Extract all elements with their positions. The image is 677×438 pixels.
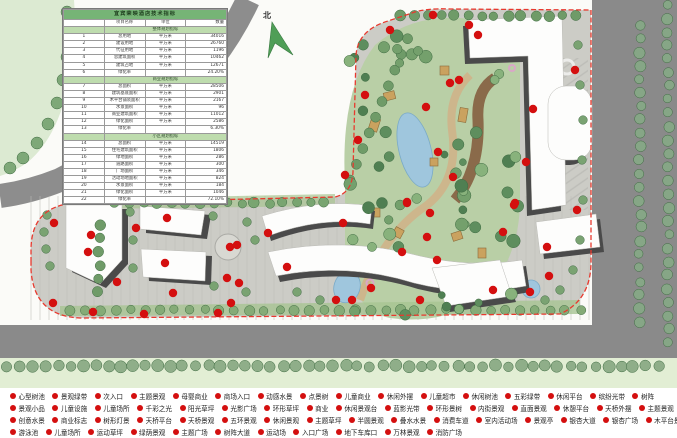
legend-dot-icon xyxy=(95,393,101,399)
legend-dot-icon xyxy=(307,417,313,423)
north-label: 北 xyxy=(263,10,271,21)
legend-label: 天桥景观 xyxy=(188,415,214,425)
legend-item: 商业标志 xyxy=(52,415,87,425)
legend-item: 树形灯景 xyxy=(95,415,130,425)
legend-label: 儿童设施 xyxy=(61,403,87,413)
table-row: 20水景面积平方米184 xyxy=(64,183,227,190)
table-row: 21绿化面积平方米1046 xyxy=(64,190,227,197)
legend-item: 主题景观 xyxy=(131,391,166,401)
legend-item: 儿童设施 xyxy=(52,403,87,413)
legend-item: 母婴商业 xyxy=(173,391,208,401)
legend-label: 光影广场 xyxy=(230,403,256,413)
legend-dot-icon xyxy=(597,405,603,411)
table-row: 13绿化率6.30% xyxy=(64,126,227,133)
plan-marker-dot xyxy=(264,229,272,237)
plan-marker-dot xyxy=(227,299,235,307)
legend-label: 商业 xyxy=(315,403,328,413)
legend-label: 主题景观 xyxy=(139,391,165,401)
legend-dot-icon xyxy=(505,393,511,399)
site-plan-canvas: 北 宜宾荣映酒店技术指标项目名称单位数量整体规划指标1总用地平方米340162建… xyxy=(0,0,677,438)
plan-marker-dot xyxy=(132,224,140,232)
legend-label: 休闲树池 xyxy=(471,391,497,401)
legend-label: 运动场 xyxy=(266,427,286,437)
legend-dot-icon xyxy=(336,429,342,435)
plan-marker-dot xyxy=(332,296,340,304)
legend-label: 万林景观 xyxy=(393,427,419,437)
legend-item: 景观亭 xyxy=(525,415,553,425)
plan-marker-dot xyxy=(367,284,375,292)
table-row: 18广场面积平方米346 xyxy=(64,168,227,175)
plan-marker-dot xyxy=(354,136,362,144)
legend-dot-icon xyxy=(10,417,16,423)
table-title: 宜宾荣映酒店技术指标 xyxy=(64,10,227,20)
table-row: 19活动场地面积平方米824 xyxy=(64,176,227,183)
legend-dot-icon xyxy=(385,405,391,411)
legend-item: 休闲平台 xyxy=(548,391,583,401)
legend-label: 树形灯景 xyxy=(103,415,129,425)
legend-item: 运动场 xyxy=(258,427,286,437)
legend-label: 阳光草坪 xyxy=(188,403,214,413)
legend-item: 半圆景观 xyxy=(349,415,384,425)
legend-item: 点景树 xyxy=(300,391,328,401)
table-row: 2建设用地平方米26760 xyxy=(64,41,227,48)
legend-label: 直面景观 xyxy=(520,403,546,413)
legend-dot-icon xyxy=(385,429,391,435)
legend-dot-icon xyxy=(427,405,433,411)
plan-marker-dot xyxy=(49,299,57,307)
legend-item: 心型树池 xyxy=(10,391,45,401)
legend-label: 树阵 xyxy=(641,391,654,401)
table-section-row: 整体规划指标 xyxy=(64,27,227,34)
legend-dot-icon xyxy=(95,405,101,411)
legend-item: 游泳池 xyxy=(10,427,38,437)
legend-label: 休闲平台 xyxy=(556,391,582,401)
legend-item: 光影广场 xyxy=(222,403,257,413)
legend-label: 树阵大道 xyxy=(224,427,250,437)
legend-dot-icon xyxy=(590,393,596,399)
legend-item: 休闲景观台 xyxy=(336,403,377,413)
legend-row: 游泳池儿童场所运动草坪绿荫景观主题广场树阵大道运动场入口广场地下车库口万林景观消… xyxy=(0,427,677,437)
legend-label: 五环景观 xyxy=(230,415,256,425)
plan-marker-dot xyxy=(140,310,148,318)
legend-item: 动感水景 xyxy=(258,391,293,401)
legend-dot-icon xyxy=(427,429,433,435)
legend-dot-icon xyxy=(336,393,342,399)
legend-label: 母婴商业 xyxy=(181,391,207,401)
legend-dot-icon xyxy=(52,405,58,411)
table-row: 22绿化率72.10% xyxy=(64,197,227,204)
legend-item: 木平台景观 xyxy=(646,415,677,425)
plan-marker-dot xyxy=(283,263,291,271)
legend-label: 景观绿带 xyxy=(61,391,87,401)
plan-marker-dot xyxy=(398,248,406,256)
legend-item: 儿童商业 xyxy=(336,391,371,401)
legend-dot-icon xyxy=(258,393,264,399)
plan-marker-dot xyxy=(474,31,482,39)
legend-item: 绿荫景观 xyxy=(131,427,166,437)
plan-marker-dot xyxy=(529,105,537,113)
legend-label: 木平台景观 xyxy=(654,415,677,425)
legend-item: 休闲景观 xyxy=(264,415,299,425)
legend-item: 直面景观 xyxy=(512,403,547,413)
legend-dot-icon xyxy=(131,429,137,435)
legend-item: 树阵 xyxy=(632,391,654,401)
legend-item: 休憩平台 xyxy=(554,403,589,413)
plan-marker-dot xyxy=(233,241,241,249)
plan-marker-dot xyxy=(361,91,369,99)
legend-dot-icon xyxy=(300,393,306,399)
table-row: 6绿化率24.20% xyxy=(64,69,227,76)
legend-item: 休闲树池 xyxy=(463,391,498,401)
legend-dot-icon xyxy=(10,429,16,435)
plan-marker-dot xyxy=(339,219,347,227)
legend-dot-icon xyxy=(88,429,94,435)
legend-label: 儿童场所 xyxy=(54,427,80,437)
plan-marker-dot xyxy=(422,103,430,111)
legend-label: 休闲外摆 xyxy=(387,391,413,401)
legend-item: 室内活动场 xyxy=(476,415,517,425)
legend-item: 阳光草坪 xyxy=(180,403,215,413)
legend-label: 景观小品 xyxy=(19,403,45,413)
legend-label: 次入口 xyxy=(103,391,123,401)
table-row: 7总面积平方米28506 xyxy=(64,83,227,90)
legend-dot-icon xyxy=(10,393,16,399)
table-section-row: 小区规划指标 xyxy=(64,133,227,140)
legend-dot-icon xyxy=(293,429,299,435)
legend-dot-icon xyxy=(603,417,609,423)
legend-dot-icon xyxy=(463,393,469,399)
legend-label: 叠水水景 xyxy=(400,415,426,425)
legend-dot-icon xyxy=(264,417,270,423)
legend-item: 缤纷光带 xyxy=(590,391,625,401)
plan-marker-dot xyxy=(522,158,530,166)
legend-item: 休闲外摆 xyxy=(378,391,413,401)
legend-dot-icon xyxy=(52,393,58,399)
legend-label: 半圆景观 xyxy=(358,415,384,425)
legend-dot-icon xyxy=(222,405,228,411)
table-section-row: 商业规划指标 xyxy=(64,76,227,83)
legend-dot-icon xyxy=(222,417,228,423)
plan-marker-dot xyxy=(341,171,349,179)
legend-label: 商业标志 xyxy=(61,415,87,425)
legend-label: 入口广场 xyxy=(302,427,328,437)
plan-marker-dot xyxy=(511,199,519,207)
plan-marker-dot xyxy=(163,214,171,222)
legend-label: 天桥外摆 xyxy=(605,403,631,413)
table-row: 15住宅建筑面积平方米1806 xyxy=(64,147,227,154)
legend-item: 景观小品 xyxy=(10,403,45,413)
legend-item: 儿童超市 xyxy=(421,391,456,401)
plan-marker-dot xyxy=(89,308,97,316)
table-row: 11商业建筑面积平方米11012 xyxy=(64,112,227,119)
plan-marker-dot xyxy=(526,288,534,296)
plan-marker-dot xyxy=(169,289,177,297)
technical-indicators-table: 宜宾荣映酒店技术指标项目名称单位数量整体规划指标1总用地平方米340162建设用… xyxy=(62,8,228,205)
legend-item: 主题广场 xyxy=(173,427,208,437)
legend-dot-icon xyxy=(307,405,313,411)
plan-marker-dot xyxy=(545,272,553,280)
legend-label: 消费车道 xyxy=(442,415,468,425)
legend-label: 儿童场所 xyxy=(103,403,129,413)
legend-item: 天桥平台 xyxy=(137,415,172,425)
plan-marker-dot xyxy=(161,259,169,267)
legend-item: 万林景观 xyxy=(385,427,420,437)
legend-label: 环形草坪 xyxy=(273,403,299,413)
legend-item: 蓝影光带 xyxy=(385,403,420,413)
legend-dot-icon xyxy=(391,417,397,423)
legend-dot-icon xyxy=(554,405,560,411)
legend-dot-icon xyxy=(646,417,652,423)
legend-dot-icon xyxy=(336,405,342,411)
table-row: 10水景面积平方米96 xyxy=(64,105,227,112)
legend-dot-icon xyxy=(46,429,52,435)
plan-marker-dot xyxy=(416,296,424,304)
legend-label: 儿童超市 xyxy=(429,391,455,401)
legend-label: 休闲景观台 xyxy=(344,403,377,413)
legend-item: 叠水水景 xyxy=(391,415,426,425)
legend-item: 银杏大道 xyxy=(561,415,596,425)
table-row: 16绿地面积平方米286 xyxy=(64,154,227,161)
plan-marker-dot xyxy=(429,11,437,19)
legend-item: 消防广场 xyxy=(427,427,462,437)
legend-label: 商场入口 xyxy=(224,391,250,401)
legend-dot-icon xyxy=(512,405,518,411)
plan-marker-dot xyxy=(403,198,411,206)
legend-item: 商场入口 xyxy=(215,391,250,401)
table-row: 3代征用地平方米1196 xyxy=(64,48,227,55)
legend-item: 商业 xyxy=(307,403,329,413)
legend-dot-icon xyxy=(215,393,221,399)
plan-marker-dot xyxy=(348,296,356,304)
legend-label: 室内活动场 xyxy=(485,415,518,425)
plan-marker-dot xyxy=(50,219,58,227)
legend-label: 点景树 xyxy=(309,391,329,401)
legend-item: 环形景树 xyxy=(427,403,462,413)
table-row: 12绿化面积平方米2586 xyxy=(64,119,227,126)
legend-item: 环形草坪 xyxy=(264,403,299,413)
legend-label: 主题景观 xyxy=(648,403,674,413)
legend-label: 环形景树 xyxy=(436,403,462,413)
legend-label: 儿童商业 xyxy=(344,391,370,401)
plan-marker-dot xyxy=(489,286,497,294)
plan-marker-dot xyxy=(499,228,507,236)
legend-label: 天桥平台 xyxy=(146,415,172,425)
plan-marker-dot xyxy=(573,206,581,214)
plan-marker-dot xyxy=(455,76,463,84)
legend-label: 景观亭 xyxy=(534,415,554,425)
legend-row: 心型树池景观绿带次入口主题景观母婴商业商场入口动感水景点景树儿童商业休闲外摆儿童… xyxy=(0,391,677,401)
legend-label: 心型树池 xyxy=(19,391,45,401)
plan-marker-dot xyxy=(571,66,579,74)
legend-item: 五彩绿带 xyxy=(505,391,540,401)
legend-item: 树阵大道 xyxy=(215,427,250,437)
legend-dot-icon xyxy=(10,405,16,411)
table-header-row: 项目名称单位数量 xyxy=(64,20,227,27)
legend-dot-icon xyxy=(525,417,531,423)
plan-marker-dot xyxy=(446,79,454,87)
legend-label: 五彩绿带 xyxy=(514,391,540,401)
legend-item: 运动草坪 xyxy=(88,427,123,437)
plan-marker-dot xyxy=(434,148,442,156)
legend-label: 地下车库口 xyxy=(344,427,377,437)
legend-row: 景观小品儿童设施儿童场所千彩之光阳光草坪光影广场环形草坪商业休闲景观台蓝影光带环… xyxy=(0,403,677,413)
legend-label: 内街景观 xyxy=(478,403,504,413)
plan-marker-dot xyxy=(113,278,121,286)
legend-dot-icon xyxy=(632,393,638,399)
legend-row: 创意水景商业标志树形灯景天桥平台天桥景观五环景观休闲景观主题草坪半圆景观叠水水景… xyxy=(0,415,677,425)
legend-label: 休憩平台 xyxy=(563,403,589,413)
table-row: 5建筑占地平方米12671 xyxy=(64,62,227,69)
legend-label: 银杏大道 xyxy=(569,415,595,425)
legend-dot-icon xyxy=(470,405,476,411)
table-row: 8建筑基底面积平方米2901 xyxy=(64,90,227,97)
legend-dot-icon xyxy=(180,405,186,411)
legend-dot-icon xyxy=(95,417,101,423)
legend-item: 五环景观 xyxy=(222,415,257,425)
legend-dot-icon xyxy=(639,405,645,411)
legend-item: 千彩之光 xyxy=(137,403,172,413)
legend-dot-icon xyxy=(131,393,137,399)
legend-dot-icon xyxy=(548,393,554,399)
legend-dot-icon xyxy=(561,417,567,423)
legend-item: 入口广场 xyxy=(293,427,328,437)
legend-dot-icon xyxy=(421,393,427,399)
legend-item: 创意水景 xyxy=(10,415,45,425)
plan-marker-dot xyxy=(423,233,431,241)
legend-item: 天桥景观 xyxy=(180,415,215,425)
legend-label: 银杏广场 xyxy=(612,415,638,425)
legend-item: 次入口 xyxy=(95,391,123,401)
legend-label: 绿荫景观 xyxy=(139,427,165,437)
legend-dot-icon xyxy=(180,417,186,423)
table-row: 9木平台铺装面积平方米2167 xyxy=(64,98,227,105)
legend-item: 内街景观 xyxy=(470,403,505,413)
plan-marker-dot xyxy=(433,256,441,264)
legend-dot-icon xyxy=(215,429,221,435)
legend-item: 消费车道 xyxy=(434,415,469,425)
legend-dot-icon xyxy=(173,393,179,399)
legend-dot-icon xyxy=(173,429,179,435)
legend-dot-icon xyxy=(264,405,270,411)
legend-dot-icon xyxy=(258,429,264,435)
table-row: 14总面积平方米14519 xyxy=(64,140,227,147)
plan-marker-dot xyxy=(223,274,231,282)
legend-item: 地下车库口 xyxy=(336,427,377,437)
plan-marker-dot xyxy=(449,173,457,181)
legend-label: 主题广场 xyxy=(181,427,207,437)
plan-marker-dot xyxy=(543,243,551,251)
legend-item: 主题草坪 xyxy=(307,415,342,425)
legend-item: 景观绿带 xyxy=(52,391,87,401)
legend-label: 缤纷光带 xyxy=(599,391,625,401)
legend-label: 创意水景 xyxy=(19,415,45,425)
legend-item: 银杏广场 xyxy=(603,415,638,425)
legend-item: 儿童场所 xyxy=(95,403,130,413)
legend-item: 主题景观 xyxy=(639,403,674,413)
plan-marker-dot xyxy=(465,21,473,29)
legend-label: 休闲景观 xyxy=(273,415,299,425)
plan-marker-dot xyxy=(426,209,434,217)
legend-dot-icon xyxy=(52,417,58,423)
table-row: 4总建筑面积平方米10462 xyxy=(64,55,227,62)
legend-label: 蓝影光带 xyxy=(393,403,419,413)
legend-panel: 心型树池景观绿带次入口主题景观母婴商业商场入口动感水景点景树儿童商业休闲外摆儿童… xyxy=(0,388,677,438)
legend-dot-icon xyxy=(137,405,143,411)
plan-marker-dot xyxy=(386,26,394,34)
plan-marker-dot xyxy=(87,231,95,239)
legend-dot-icon xyxy=(349,417,355,423)
table-row: 17道路面积平方米300 xyxy=(64,161,227,168)
table-row: 1总用地平方米34016 xyxy=(64,34,227,41)
legend-item: 儿童场所 xyxy=(46,427,81,437)
legend-label: 千彩之光 xyxy=(146,403,172,413)
legend-label: 主题草坪 xyxy=(315,415,341,425)
legend-dot-icon xyxy=(476,417,482,423)
legend-dot-icon xyxy=(434,417,440,423)
legend-label: 动感水景 xyxy=(266,391,292,401)
plan-marker-dot xyxy=(84,248,92,256)
plan-marker-dot xyxy=(214,309,222,317)
legend-label: 消防广场 xyxy=(436,427,462,437)
legend-dot-icon xyxy=(137,417,143,423)
legend-dot-icon xyxy=(378,393,384,399)
legend-label: 运动草坪 xyxy=(97,427,123,437)
legend-item: 天桥外摆 xyxy=(597,403,632,413)
legend-label: 游泳池 xyxy=(19,427,39,437)
plan-marker-dot xyxy=(235,279,243,287)
